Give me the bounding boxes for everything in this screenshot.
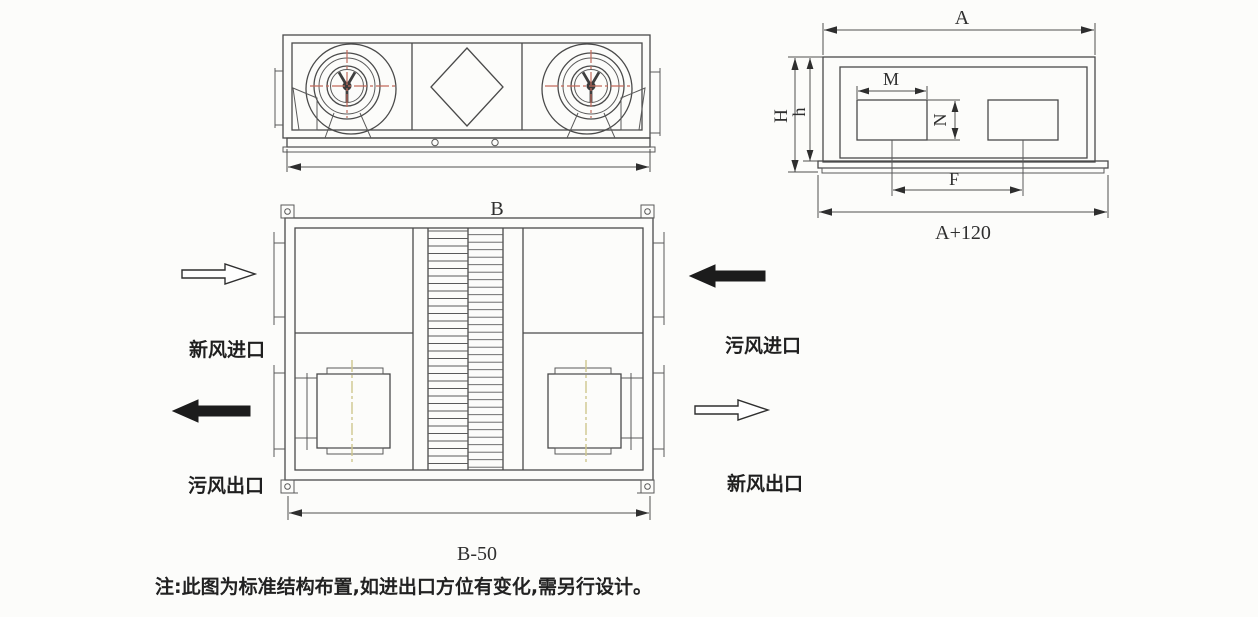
flow-label-fresh-air-outlet: 新风出口 <box>727 472 803 495</box>
side-right-opening <box>988 100 1058 140</box>
heat-exchanger-core <box>428 228 503 470</box>
fresh-air-inlet-arrow-icon <box>182 264 255 284</box>
rail-hole-left <box>432 139 438 145</box>
fresh-air-outlet-arrow-icon <box>695 400 768 420</box>
fan-inlet-wedge <box>293 88 317 130</box>
plan-left-flanges <box>274 232 285 457</box>
dim-label-m: M <box>883 69 899 89</box>
front-right-flange <box>650 68 660 136</box>
dim-label-a: A <box>955 7 970 29</box>
side-base-skid <box>822 168 1104 173</box>
plan-left-fan-box <box>295 360 390 462</box>
dim-label-n: N <box>930 114 950 127</box>
dim-label-a-plus-120: A+120 <box>935 222 991 244</box>
dimension-a: A <box>823 7 1095 55</box>
filter-diamond <box>431 48 503 126</box>
drawing-canvas: A H h M N <box>0 0 1258 617</box>
plan-right-flanges <box>653 232 664 457</box>
flow-label-fresh-air-inlet: 新风进口 <box>189 338 265 361</box>
rail-hole-right <box>492 139 498 145</box>
flow-label-foul-air-outlet: 污风出口 <box>188 474 264 497</box>
base-rail <box>287 138 650 147</box>
dim-label-b: B <box>490 198 503 220</box>
base-skid <box>283 147 655 152</box>
flow-label-foul-air-inlet: 污风进口 <box>725 335 801 357</box>
plan-base-dimension <box>288 496 650 520</box>
dimension-a-plus-120: A+120 <box>818 175 1108 244</box>
core-hatch-right <box>468 235 503 468</box>
side-outer-casing <box>823 57 1095 162</box>
side-view: A H h M N <box>771 7 1108 244</box>
dim-label-h-body: h <box>789 108 809 117</box>
front-view <box>275 35 660 172</box>
side-left-opening <box>857 100 927 140</box>
flow-annotations: 新风进口 污风出口 污风进口 新风出口 <box>173 264 803 497</box>
front-section-dividers <box>412 43 522 130</box>
front-right-fan <box>542 44 645 138</box>
front-left-flange <box>275 68 283 128</box>
dimension-m: M <box>857 69 927 99</box>
front-left-fan <box>293 44 397 138</box>
note-text: 注:此图为标准结构布置,如进出口方位有变化,需另行设计。 <box>155 575 652 598</box>
plan-right-fan-box <box>548 360 643 462</box>
foul-air-inlet-arrow-icon <box>690 265 765 287</box>
dim-label-f: F <box>949 169 959 189</box>
technical-drawing: A H h M N <box>0 0 1258 617</box>
dimension-h: H h <box>771 57 823 172</box>
side-inner-casing <box>840 67 1087 158</box>
foul-air-outlet-arrow-icon <box>173 400 250 422</box>
dimension-n: N <box>927 100 960 140</box>
core-hatch-left <box>428 231 468 464</box>
dim-label-b-50: B-50 <box>457 543 497 565</box>
plan-view: B B-50 <box>274 198 664 565</box>
